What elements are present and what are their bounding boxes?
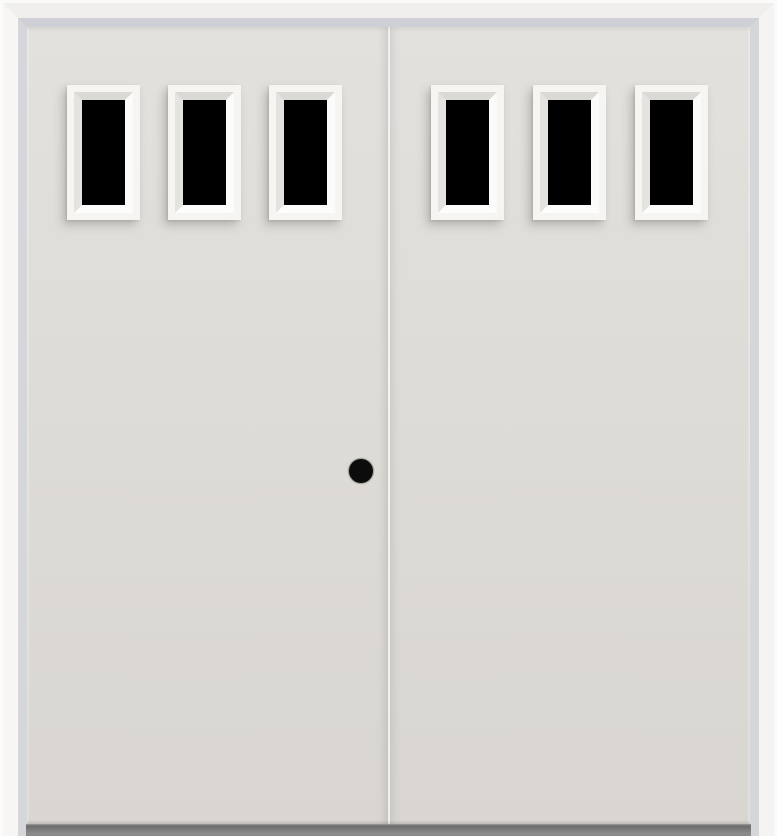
- lite-glass: [540, 92, 599, 213]
- right-door-slab: [390, 27, 751, 824]
- door-sill-threshold: [26, 824, 751, 836]
- left-door-slab: [27, 27, 388, 824]
- lite-glass: [74, 92, 133, 213]
- right-door-lite-2: [533, 85, 606, 220]
- door-product-image: [0, 0, 777, 836]
- lite-glass: [642, 92, 701, 213]
- left-door-lite-3: [269, 85, 342, 220]
- left-door-lite-2: [168, 85, 241, 220]
- lite-glass: [175, 92, 234, 213]
- knob-bore: [349, 459, 373, 483]
- door-slabs: [27, 27, 750, 824]
- lite-glass: [438, 92, 497, 213]
- right-door-lite-1: [431, 85, 504, 220]
- lite-glass: [276, 92, 335, 213]
- left-door-lite-1: [67, 85, 140, 220]
- right-door-lite-3: [635, 85, 708, 220]
